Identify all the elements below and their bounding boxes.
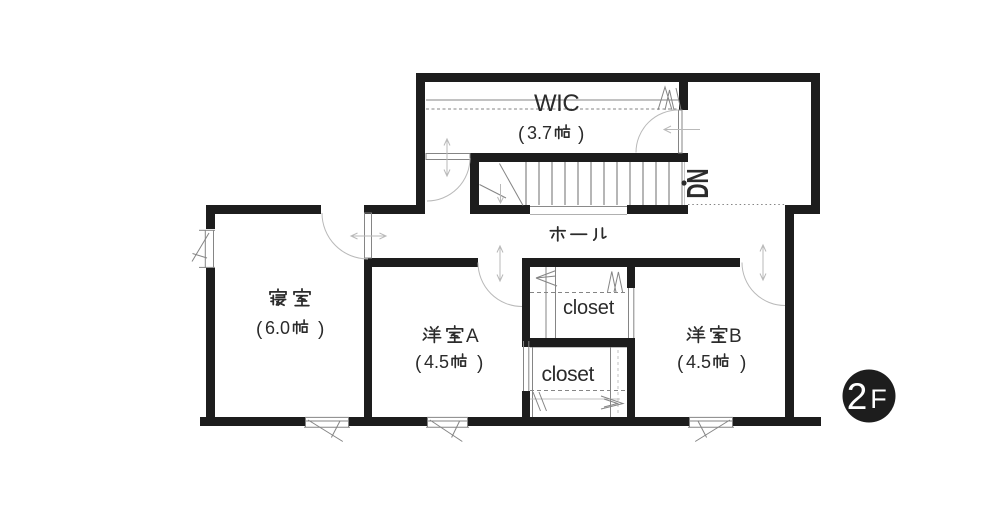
svg-text:A: A [466,326,479,347]
svg-text:4.5: 4.5 [424,352,449,372]
svg-text:closet: closet [563,297,615,319]
svg-text:4.5: 4.5 [686,352,711,372]
svg-text:(: ( [415,353,422,374]
svg-text:): ) [477,353,483,374]
svg-text:): ) [578,124,584,145]
svg-text:6.0: 6.0 [265,318,290,338]
svg-text:): ) [318,319,324,340]
svg-text:DN: DN [680,169,715,199]
svg-text:(: ( [518,124,525,145]
svg-text:B: B [729,326,742,347]
svg-text:(: ( [256,319,263,340]
svg-text:): ) [740,353,746,374]
svg-text:(: ( [677,353,684,374]
svg-text:WIC: WIC [534,90,579,117]
svg-text:F: F [870,384,887,414]
svg-text:3.7: 3.7 [527,123,552,143]
svg-text:closet: closet [542,363,595,386]
svg-text:2: 2 [847,376,868,417]
